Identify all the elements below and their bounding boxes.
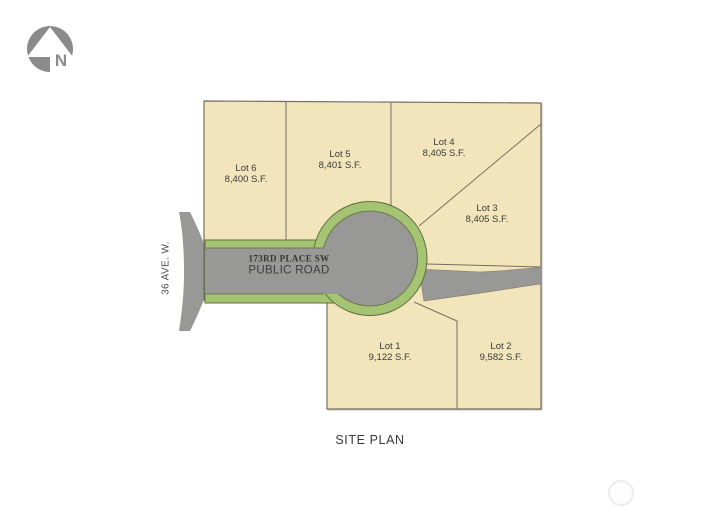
north-arrow-label: N <box>55 51 67 70</box>
road-pavement <box>205 248 345 294</box>
left-road-pavement <box>179 212 205 331</box>
site-plan-drawing: N <box>0 0 720 509</box>
north-arrow: N <box>27 26 74 73</box>
site-plan-page: N 173RD PLACE SW PUBLIC ROAD 36 AVE. W. … <box>0 0 720 509</box>
watermark-circle <box>608 480 634 506</box>
